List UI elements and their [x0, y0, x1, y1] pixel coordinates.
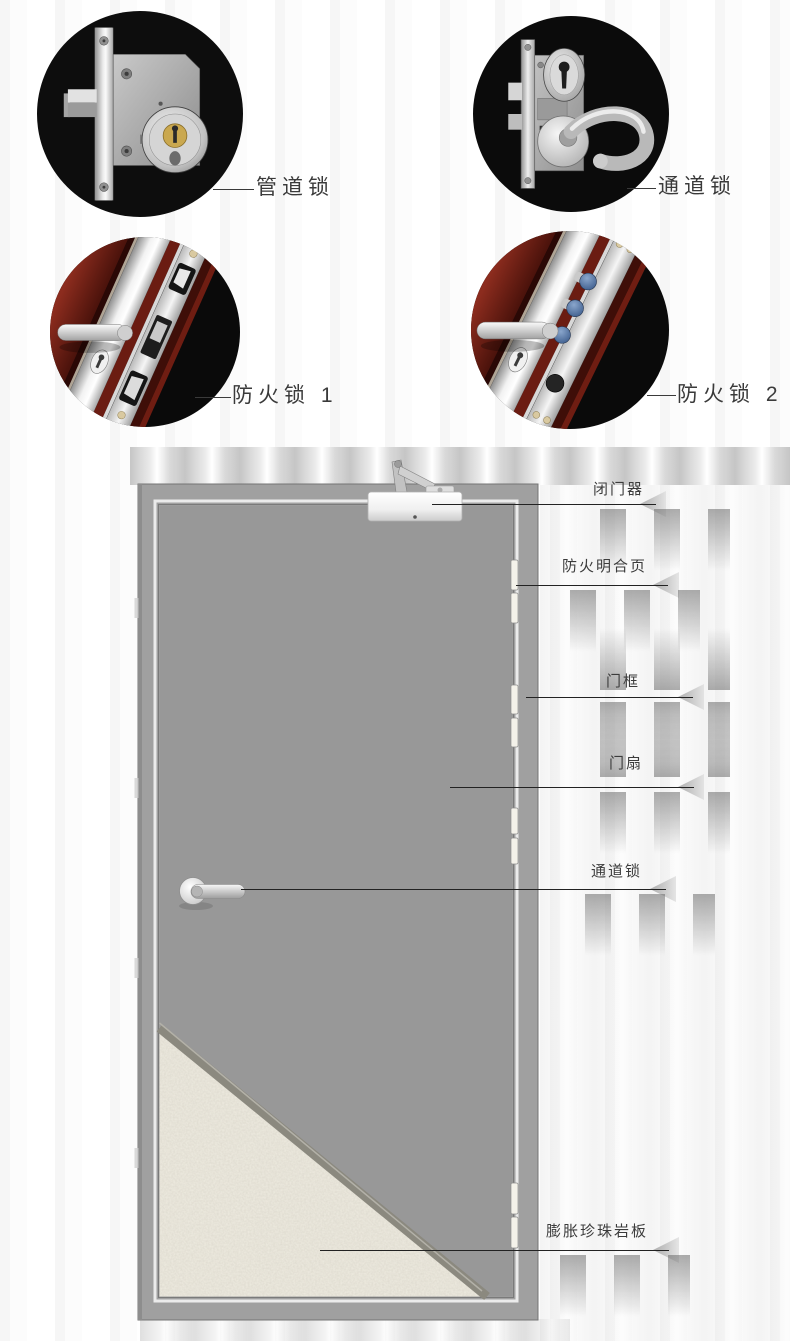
lever-handle	[477, 322, 550, 339]
label-passage-lock-door: 通道锁	[591, 864, 642, 881]
dead-bolt	[508, 114, 522, 130]
lock-faceplate	[521, 40, 535, 189]
label-door-leaf: 门扇	[609, 756, 643, 773]
tick-fire-lock-1	[195, 397, 231, 398]
artifact-column	[560, 1255, 690, 1320]
passage-lock-photo	[473, 16, 669, 212]
label-door-frame: 门框	[606, 674, 640, 691]
tick-pipe-lock	[213, 189, 254, 190]
fire-lock-2-icon	[471, 231, 669, 429]
label-fire-lock-2: 防火锁 2	[677, 383, 783, 406]
fire-lock-1-photo	[50, 237, 240, 427]
artifact-column	[600, 792, 730, 857]
label-perlite-board: 膨胀珍珠岩板	[546, 1224, 648, 1241]
fire-lock-2-photo	[471, 231, 669, 429]
fire-door-drawing	[130, 448, 546, 1341]
leader-fire-hinge	[516, 585, 668, 586]
label-pipe-lock: 管道锁	[256, 176, 334, 199]
leader-door-closer	[432, 504, 656, 505]
tick-fire-lock-2	[647, 395, 676, 396]
latch-bolt	[508, 83, 522, 101]
leader-perlite-board	[320, 1250, 669, 1251]
passage-lock-icon	[473, 16, 669, 212]
pipe-lock-photo	[37, 11, 243, 217]
leader-door-leaf	[450, 787, 694, 788]
tick-passage-lock	[627, 188, 656, 189]
lock-faceplate	[95, 27, 114, 200]
lever-handle	[58, 324, 126, 340]
leader-door-frame	[526, 697, 693, 698]
leader-passage-lock	[241, 889, 666, 890]
artifact-column	[585, 894, 715, 959]
artifact-column	[570, 590, 700, 655]
fire-door-product-diagram: 管道锁 通道锁 防火锁 1 防火锁 2	[0, 0, 790, 1341]
label-passage-lock: 通道锁	[658, 175, 736, 198]
pipe-lock-icon	[37, 11, 243, 217]
fire-lock-1-icon	[50, 237, 240, 427]
label-door-closer: 闭门器	[593, 482, 644, 499]
fire-door-diagram	[130, 448, 546, 1341]
stripe-artifact-right-column	[540, 485, 790, 1341]
label-fire-hinge: 防火明合页	[562, 559, 647, 576]
label-fire-lock-1: 防火锁 1	[232, 384, 338, 407]
